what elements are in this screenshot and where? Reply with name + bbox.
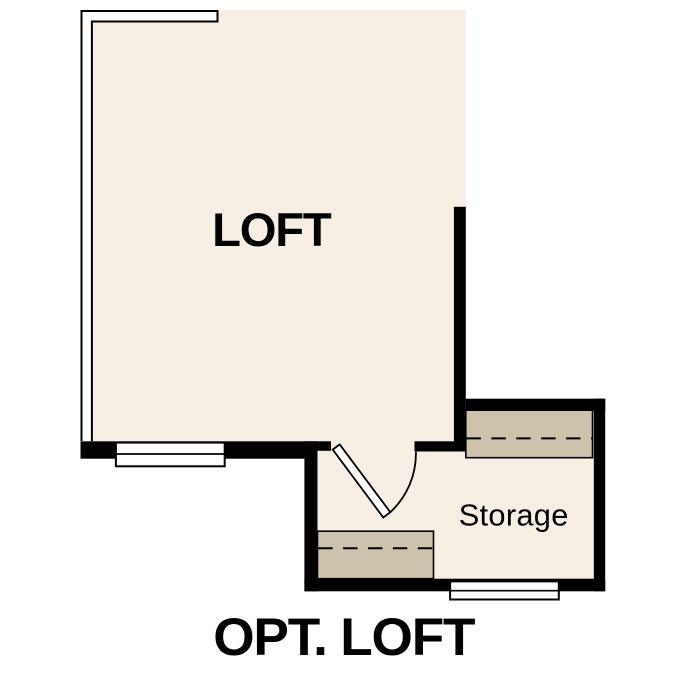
- svg-text:OPT. LOFT: OPT. LOFT: [213, 608, 475, 667]
- svg-text:LOFT: LOFT: [212, 204, 332, 257]
- svg-text:Storage: Storage: [459, 498, 569, 533]
